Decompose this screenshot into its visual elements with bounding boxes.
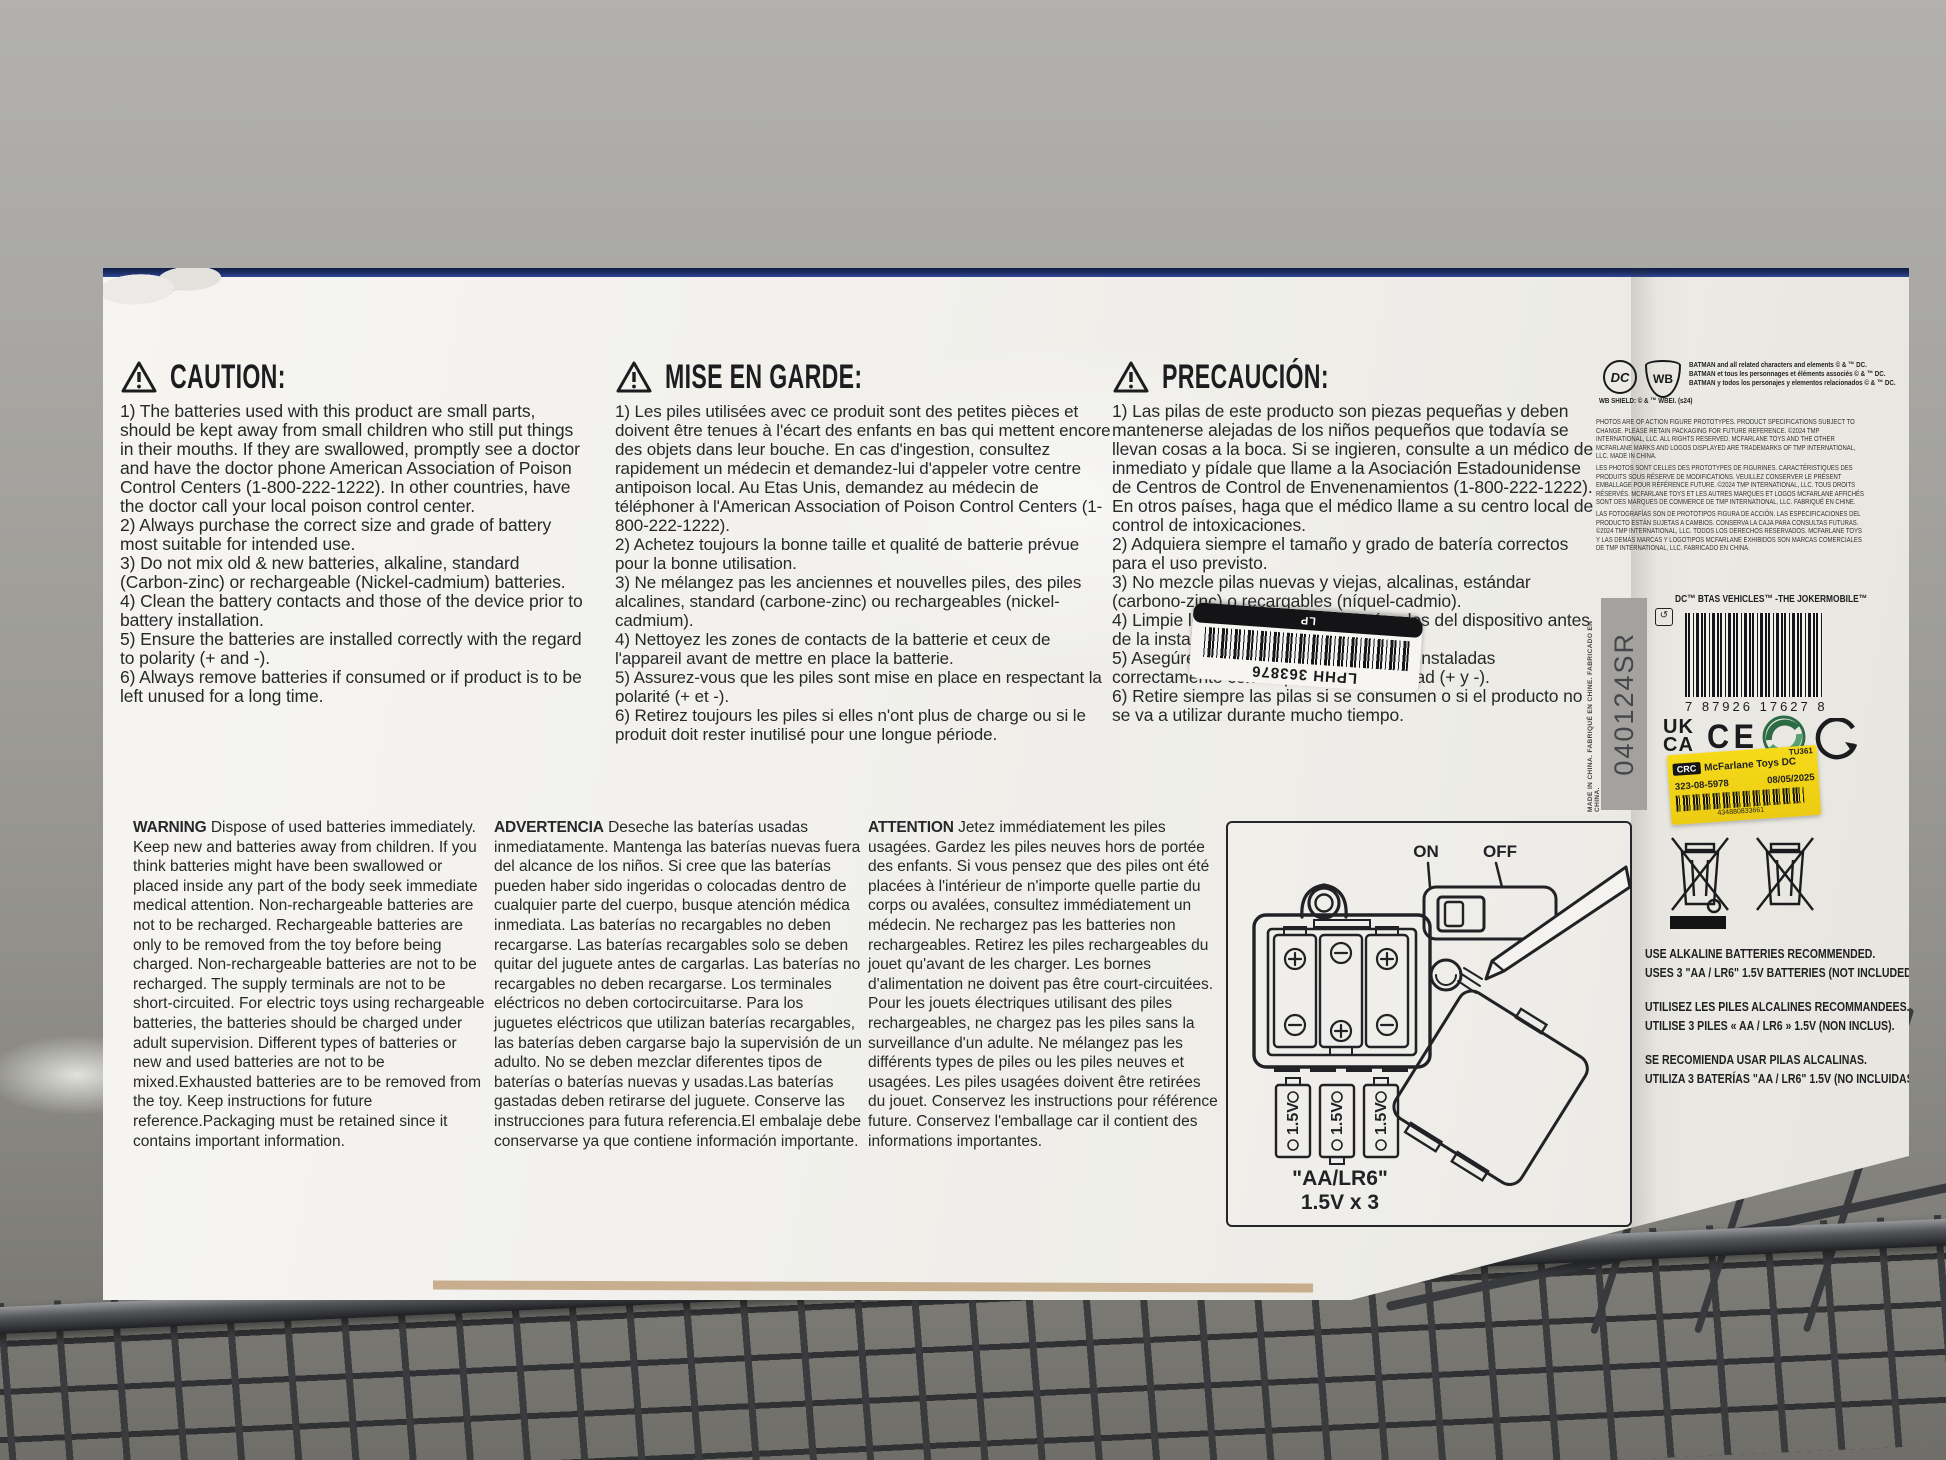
lp-inventory-sticker: LPHH 363876 LP xyxy=(1189,602,1424,694)
caution-item: 4) Clean the battery contacts and those … xyxy=(120,592,590,630)
switch-on-label: ON xyxy=(1413,842,1439,861)
legal-fineprint: PHOTOS ARE OF ACTION FIGURE PROTOTYPES. … xyxy=(1596,418,1864,556)
product-box-back-panel: CAUTION: 1) The batteries used with this… xyxy=(103,268,1909,1300)
product-name-line: DC™ BTAS VEHICLES™ -THE JOKERMOBILE™ xyxy=(1675,593,1867,605)
battery-installation-diagram: ON OFF xyxy=(1226,821,1632,1227)
caution-item: 2) Always purchase the correct size and … xyxy=(120,516,590,554)
weee-solid-bar xyxy=(1670,916,1726,929)
caution-item: 6) Retire siempre las pilas si se consum… xyxy=(1112,687,1604,725)
barcode-number: 7 87926 17627 8 xyxy=(1685,699,1823,714)
sticker-store-name: McFarlane Toys DC xyxy=(1704,756,1797,773)
caution-item: 3) Ne mélangez pas les anciennes et nouv… xyxy=(615,573,1115,630)
caution-heading-row: MISE EN GARDE: xyxy=(615,356,1115,398)
warning-paragraph-french: ATTENTION Jetez immédiatement les piles … xyxy=(868,818,1220,1151)
reco-french: UTILISEZ LES PILES ALCALINES RECOMMANDEE… xyxy=(1645,997,1946,1035)
warning-triangle-icon xyxy=(1112,360,1150,394)
loose-batteries-drawing: 1.5V 1.5V 1.5V xyxy=(1276,1078,1398,1164)
cardboard-edge xyxy=(433,1280,1313,1292)
sku-code: 040124SR xyxy=(1609,632,1640,776)
caution-section-french: MISE EN GARDE: 1) Les piles utilisées av… xyxy=(615,356,1115,744)
warning-lead: WARNING xyxy=(133,819,207,836)
fineprint-english: PHOTOS ARE OF ACTION FIGURE PROTOTYPES. … xyxy=(1596,418,1864,461)
warning-paragraph-spanish: ADVERTENCIA Deseche las baterías usadas … xyxy=(494,818,862,1151)
advertencia-lead: ADVERTENCIA xyxy=(494,819,604,836)
upc-barcode: 7 87926 17627 8 xyxy=(1685,613,1823,714)
brand-logo-row: DC WB BATMAN and all related characters … xyxy=(1603,360,1879,398)
switch-off-label: OFF xyxy=(1483,842,1517,861)
weee-crossed-bin-icon xyxy=(1755,836,1815,919)
caution-item: 2) Achetez toujours la bonne taille et q… xyxy=(615,535,1115,573)
screw-drawing xyxy=(1431,960,1482,993)
caution-heading: CAUTION: xyxy=(170,358,286,397)
advertencia-text: Deseche las baterías usadas inmediatamen… xyxy=(494,819,862,1150)
caution-heading-row: CAUTION: xyxy=(120,356,590,398)
warning-triangle-icon xyxy=(615,360,653,394)
barcode-bars xyxy=(1685,613,1823,697)
ukca-mark: UKCA xyxy=(1663,718,1694,754)
battery-voltage-label: 1.5V xyxy=(1285,1102,1302,1135)
caution-item: 3) No mezcle pilas nuevas y viejas, alca… xyxy=(1112,573,1604,611)
reco-english: USE ALKALINE BATTERIES RECOMMENDED. USES… xyxy=(1645,944,1946,982)
battery-count-caption: 1.5V x 3 xyxy=(1301,1191,1379,1214)
caution-section-english: CAUTION: 1) The batteries used with this… xyxy=(120,356,590,706)
dc-logo: DC xyxy=(1603,360,1637,394)
wb-shield-logo: WB xyxy=(1645,360,1681,398)
crc-logo: CRC xyxy=(1672,762,1700,776)
caution-item: 1) The batteries used with this product … xyxy=(120,402,590,516)
caution-heading: MISE EN GARDE: xyxy=(665,358,862,397)
attention-lead: ATTENTION xyxy=(868,819,954,836)
attention-text: Jetez immédiatement les piles usagées. G… xyxy=(868,819,1218,1150)
battery-type-caption: "AA/LR6" xyxy=(1292,1167,1388,1190)
torn-corner xyxy=(93,256,236,325)
caution-item: 2) Adquiera siempre el tamaño y grado de… xyxy=(1112,535,1604,573)
warning-triangle-icon xyxy=(120,360,158,394)
sticker-date: 08/05/2025 xyxy=(1767,772,1815,786)
copyright-line: BATMAN and all related characters and el… xyxy=(1689,360,1845,369)
caution-item: 6) Always remove batteries if consumed o… xyxy=(120,668,590,706)
recycle-swoosh-icon xyxy=(1815,718,1859,767)
battery-voltage-label: 1.5V xyxy=(1329,1102,1346,1135)
copyright-line: BATMAN et tous les personnages et élémen… xyxy=(1689,369,1845,378)
caution-item: 5) Assurez-vous que les piles sont mise … xyxy=(615,668,1115,706)
reco-spanish: SE RECOMIENDA USAR PILAS ALCALINAS. UTIL… xyxy=(1645,1050,1946,1088)
caution-item: 5) Ensure the batteries are installed co… xyxy=(120,630,590,668)
recycle-mini-icon xyxy=(1655,608,1673,626)
fineprint-french: LES PHOTOS SONT CELLES DES PROTOTYPES DE… xyxy=(1596,464,1864,507)
yellow-retail-sticker: TU361 CRC McFarlane Toys DC 323-08-5978 … xyxy=(1667,745,1822,825)
caution-item: 1) Las pilas de este producto son piezas… xyxy=(1112,402,1604,535)
battery-voltage-label: 1.5V xyxy=(1373,1102,1390,1135)
caution-heading-row: PRECAUCIÓN: xyxy=(1112,356,1604,398)
sticker-id-number: 323-08-5978 xyxy=(1675,778,1730,793)
copyright-line: BATMAN y todos los personajes y elemento… xyxy=(1689,378,1845,387)
battery-diagram-drawing: ON OFF xyxy=(1228,823,1630,1225)
weee-crossed-bin-icon xyxy=(1670,836,1730,919)
battery-compartment-drawing xyxy=(1254,885,1430,1067)
warning-text: Dispose of used batteries immediately. K… xyxy=(133,819,484,1150)
wb-shield-copyright-line: WB SHIELD: © & ™ WBEI. (s24) xyxy=(1599,396,1693,405)
caution-heading: PRECAUCIÓN: xyxy=(1162,358,1329,397)
photo-of-product-box: CAUTION: 1) The batteries used with this… xyxy=(0,0,1946,1460)
pencil-drawing xyxy=(1486,867,1630,979)
made-in-vertical-text: MADE IN CHINA. FABRIQUÉ EN CHINE. FABRIC… xyxy=(1587,600,1601,812)
warning-paragraph-english: WARNING Dispose of used batteries immedi… xyxy=(133,818,485,1151)
fineprint-spanish: LAS FOTOGRAFÍAS SON DE PROTOTIPOS FIGURA… xyxy=(1596,510,1864,553)
caution-item: 1) Les piles utilisées avec ce produit s… xyxy=(615,402,1115,535)
caution-item: 3) Do not mix old & new batteries, alkal… xyxy=(120,554,590,592)
sku-vertical-band: 040124SR xyxy=(1601,598,1647,810)
battery-recommendation-text: USE ALKALINE BATTERIES RECOMMENDED. USES… xyxy=(1645,944,1946,1103)
caution-item: 6) Retirez toujours les piles si elles n… xyxy=(615,706,1115,744)
caution-item: 4) Nettoyez les zones de contacts de la … xyxy=(615,630,1115,668)
batman-copyright-lines: BATMAN and all related characters and el… xyxy=(1689,360,1845,387)
